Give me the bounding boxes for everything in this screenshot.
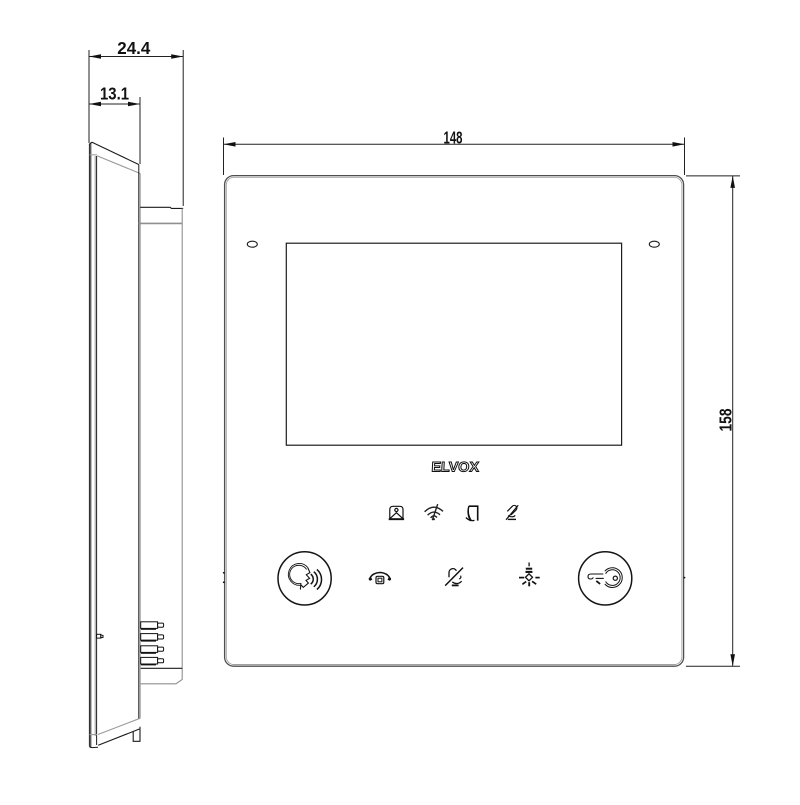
svg-text:158: 158 [715,408,735,431]
svg-text:24.4: 24.4 [117,38,150,58]
svg-text:148: 148 [444,127,463,147]
svg-text:13.1: 13.1 [100,84,129,104]
svg-text:ELVOX: ELVOX [431,460,480,475]
